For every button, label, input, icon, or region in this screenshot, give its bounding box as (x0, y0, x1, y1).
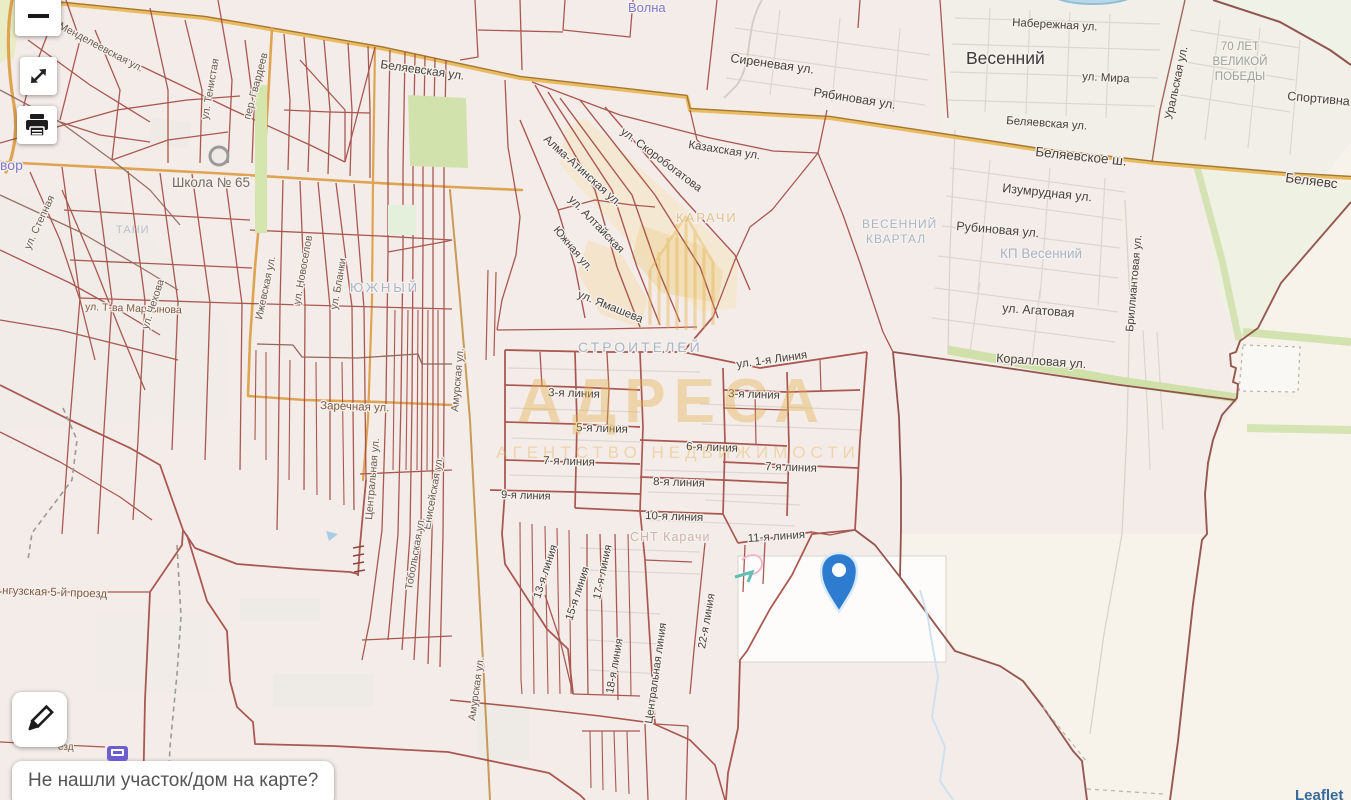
svg-text:70 ЛЕТ: 70 ЛЕТ (1221, 41, 1259, 53)
svg-text:ПОБЕДЫ: ПОБЕДЫ (1215, 71, 1265, 83)
svg-text:АДРЕСА: АДРЕСА (517, 367, 827, 436)
svg-text:10-я линия: 10-я линия (645, 510, 704, 524)
svg-text:Leaflet: Leaflet (1295, 787, 1343, 800)
svg-text:ТАНИ: ТАНИ (116, 224, 150, 236)
svg-text:СНТ Карачи: СНТ Карачи (630, 530, 711, 544)
svg-text:Заречная ул.: Заречная ул. (320, 400, 390, 414)
svg-text:КВАРТАЛ: КВАРТАЛ (866, 232, 926, 246)
svg-text:ВЕСЕННИЙ: ВЕСЕННИЙ (862, 216, 937, 231)
svg-text:АГЕНТСТВО НЕДВИЖИМОСТИ: АГЕНТСТВО НЕДВИЖИМОСТИ (496, 443, 860, 462)
svg-text:Школа № 65: Школа № 65 (172, 175, 250, 190)
svg-text:8-я линия: 8-я линия (653, 476, 705, 490)
svg-text:СТРОИТЕЛЕЙ: СТРОИТЕЛЕЙ (578, 338, 703, 355)
svg-text:вор: вор (0, 157, 23, 173)
svg-text:7-я линия: 7-я линия (765, 461, 817, 475)
svg-text:9-я линия: 9-я линия (501, 489, 551, 503)
svg-text:КП Весенний: КП Весенний (1000, 246, 1082, 261)
svg-text:Весенний: Весенний (966, 48, 1045, 68)
svg-text:ул. Мира: ул. Мира (1082, 71, 1131, 85)
svg-text:ВЕЛИКОЙ: ВЕЛИКОЙ (1213, 55, 1268, 68)
svg-text:ЮЖНЫЙ: ЮЖНЫЙ (350, 280, 420, 295)
svg-text:Волна: Волна (628, 0, 666, 15)
